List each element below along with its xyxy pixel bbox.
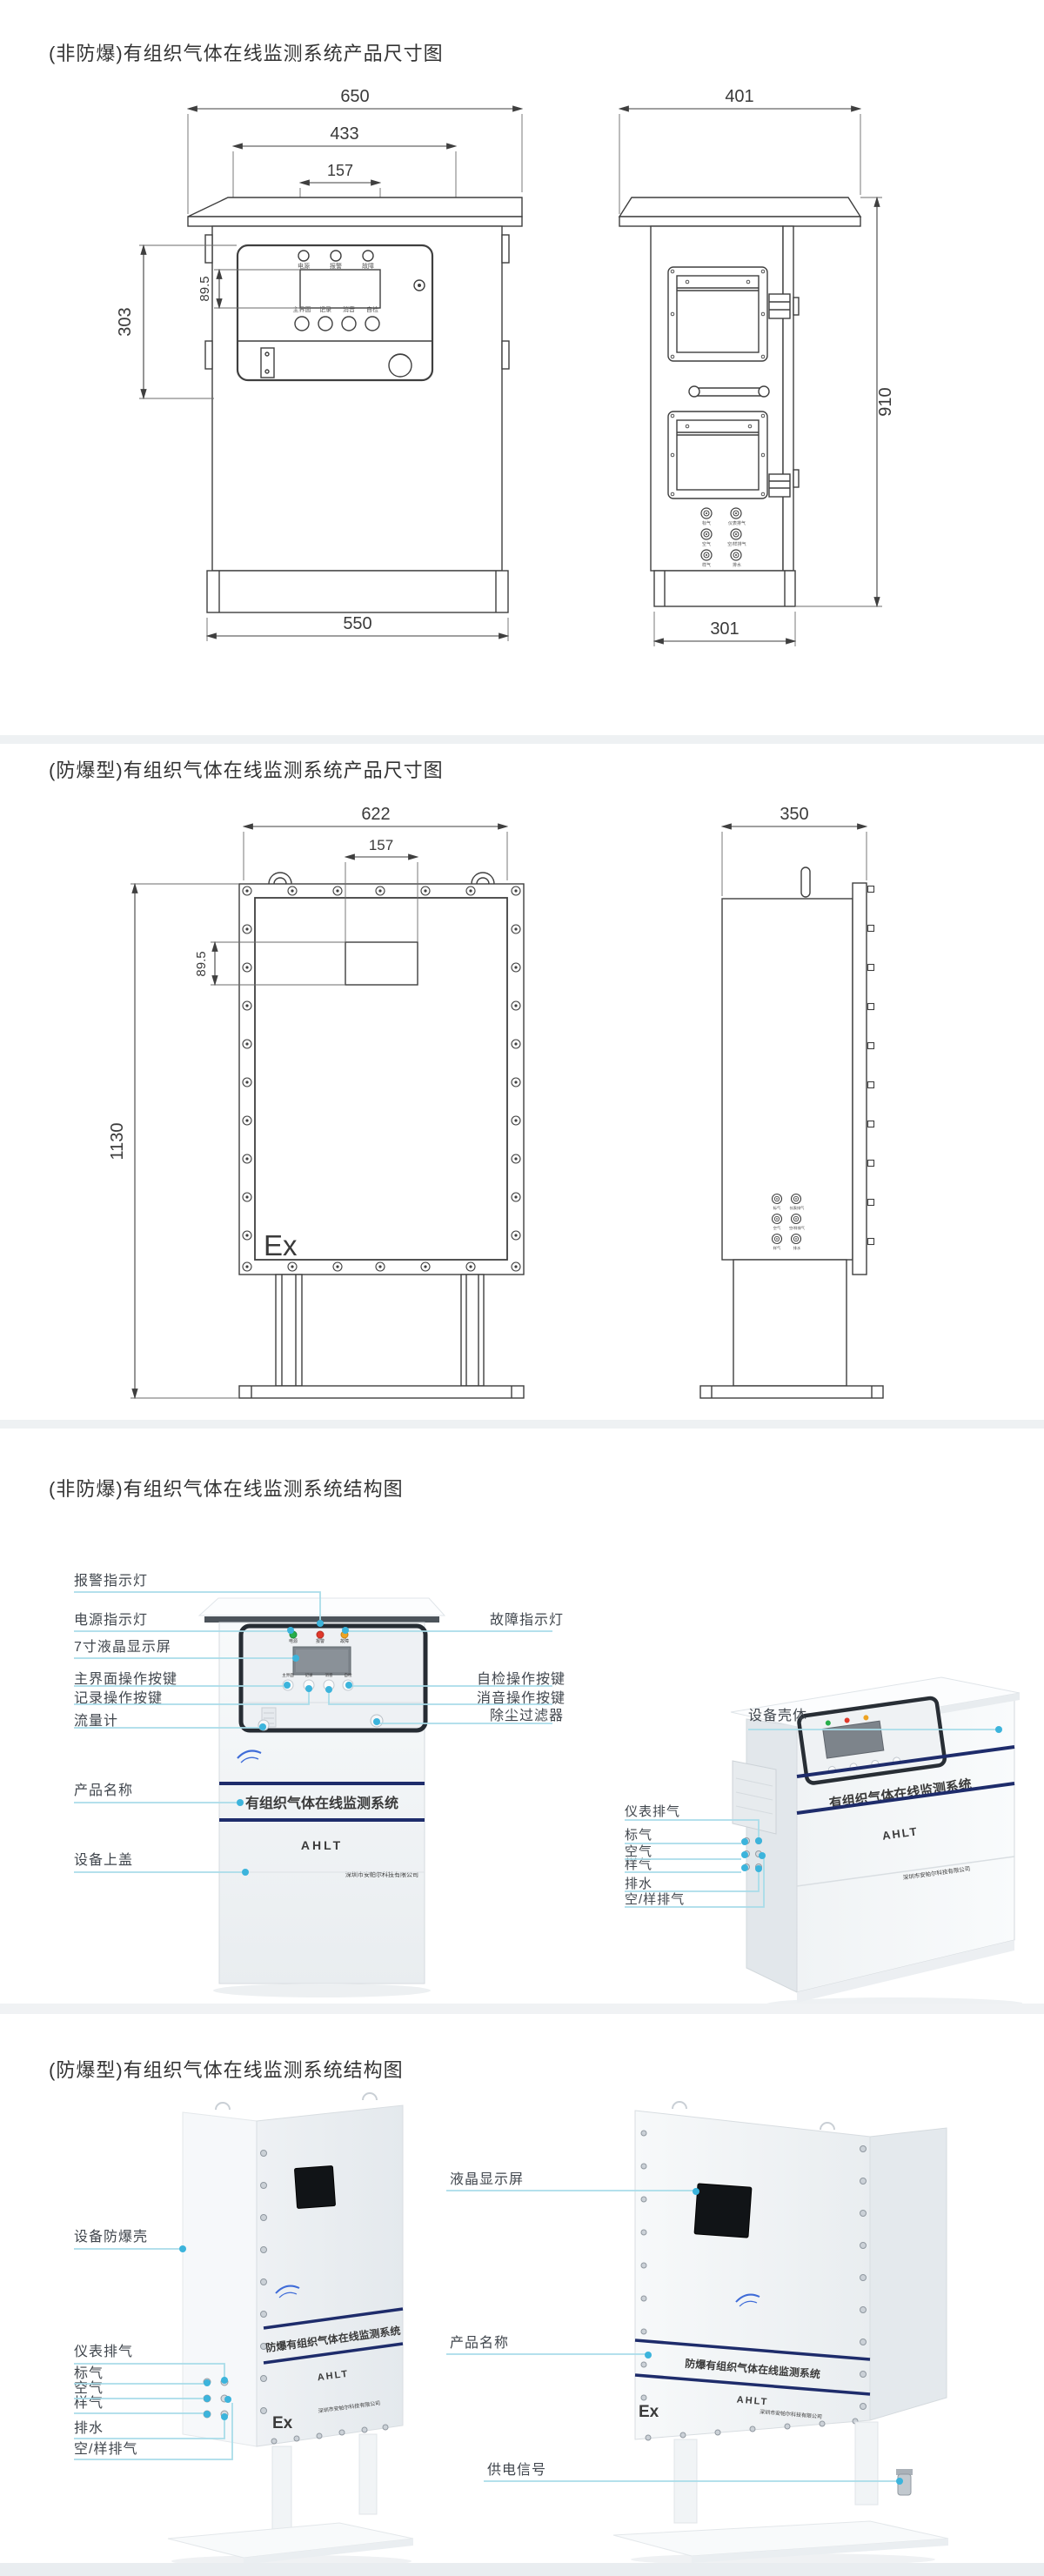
record-button: [304, 1680, 314, 1690]
svg-text:电源: 电源: [298, 262, 310, 270]
floor-base-side: [700, 1386, 883, 1398]
svg-text:样气: 样气: [773, 1245, 781, 1251]
callout-dust-filter: 除尘过滤器: [490, 1708, 564, 1725]
dim-303: 303: [116, 307, 135, 336]
svg-text:主界面: 主界面: [282, 1672, 294, 1678]
band-line-bottom: [219, 1818, 425, 1822]
svg-text:排水: 排水: [793, 1245, 801, 1251]
lcd-screen: [694, 2184, 752, 2238]
section-divider: [0, 2004, 1044, 2014]
front-view-nonex: 650 433 157 电源 报警 故障 89.5: [116, 87, 522, 641]
product-spec-page: (非防爆)有组织气体在线监测系统产品尺寸图 650 433 157: [0, 0, 1044, 2576]
callout-mute-button: 消音操作按键: [477, 1690, 565, 1708]
fault-led: [341, 1631, 348, 1638]
lifting-ring: [820, 2123, 834, 2130]
dim-157-ex: 157: [369, 837, 393, 853]
pedestal-leg: [674, 2439, 697, 2523]
dim-89-5: 89.5: [197, 276, 212, 301]
dust-filter: [371, 1715, 383, 1727]
pedestal-leg: [272, 2446, 291, 2530]
lifting-ring-side: [801, 867, 810, 897]
power-signal-gland: [898, 2474, 911, 2495]
dim-89-5-ex: 89.5: [194, 951, 209, 976]
dim-622: 622: [361, 805, 390, 824]
screen: [300, 270, 380, 308]
callout-sample-gas: 样气: [625, 1857, 652, 1873]
ex-mark: Ex: [639, 2403, 659, 2421]
dimension-drawing-ex: 622 157 89.5 Ex: [0, 800, 1044, 1409]
callout-lcd: 7寸液晶显示屏: [74, 1639, 171, 1656]
mute-button: [324, 1680, 334, 1690]
door-edge: [783, 226, 793, 571]
dimension-drawing-nonex: 650 433 157 电源 报警 故障 89.5: [0, 87, 1044, 705]
lifting-ring: [363, 2093, 377, 2100]
pedestal-leg: [359, 2434, 377, 2514]
dim-301: 301: [710, 619, 739, 639]
svg-text:标气: 标气: [773, 1205, 781, 1211]
dim-650: 650: [340, 87, 369, 106]
render-nonex-front-unit: 电源 报警 故障 主界面 记录 消音 自检 有组织气体在线监测系统 AHLT 深…: [196, 1596, 448, 2005]
section-title-struct-nonex: (非防爆)有组织气体在线监测系统结构图: [49, 1474, 404, 1502]
pedestal: [733, 1260, 847, 1386]
section-title-struct-ex: (防爆型)有组织气体在线监测系统结构图: [49, 2055, 404, 2083]
ground-shadow: [213, 1984, 431, 1997]
dim-401: 401: [725, 87, 753, 106]
side-face: [746, 1719, 797, 1992]
callout-instrument-exhaust: 仪表排气: [625, 1804, 680, 1820]
lcd-glass: [296, 1649, 348, 1672]
dim-157: 157: [327, 162, 353, 179]
alarm-led: [317, 1631, 324, 1638]
svg-text:排水: 排水: [733, 562, 741, 568]
callout-sample-gas: 样气: [74, 2395, 104, 2412]
roof-side: [619, 197, 860, 217]
dim-350: 350: [780, 805, 808, 824]
callout-instrument-exhaust: 仪表排气: [74, 2344, 133, 2361]
svg-text:仪表排气: 仪表排气: [790, 1205, 806, 1211]
callout-flow-meter: 流量计: [74, 1713, 118, 1730]
callout-main-ui-button: 主界面操作按键: [74, 1671, 177, 1689]
pedestal-leg: [855, 2422, 878, 2505]
callout-ex-housing: 设备防爆壳: [74, 2229, 148, 2246]
svg-text:标气: 标气: [702, 520, 711, 526]
render-ex-right-unit: 防爆有组织气体在线监测系统 AHLT 深圳市安帕尔科技有限公司 Ex: [609, 2090, 966, 2564]
side-view-ex: 350 标气 仪表排气 空气 空/样排气 样气 排水: [700, 805, 883, 1398]
hinge: [769, 294, 790, 318]
callout-self-check-button: 自检操作按键: [477, 1671, 565, 1689]
callout-product-name: 产品名称: [74, 1783, 133, 1800]
ex-mark: Ex: [264, 1229, 298, 1261]
roof-vent-shadow: [204, 1616, 439, 1623]
company-text: 深圳市安帕尔科技有限公司: [345, 1870, 418, 1878]
callout-power-signal: 供电信号: [487, 2462, 546, 2479]
svg-text:消音: 消音: [325, 1672, 333, 1678]
svg-text:主界面: 主界面: [293, 305, 311, 313]
callout-span-gas: 标气: [625, 1828, 652, 1843]
base: [207, 571, 508, 612]
dim-433: 433: [330, 124, 358, 144]
product-band-text: 有组织气体在线监测系统: [245, 1795, 398, 1811]
ex-mark: Ex: [272, 2414, 293, 2432]
svg-text:空气: 空气: [702, 541, 711, 547]
svg-text:电源: 电源: [289, 1638, 298, 1644]
self-check-button: [343, 1680, 353, 1690]
hinge: [769, 474, 790, 497]
callout-air-sample-exhaust: 空/样排气: [74, 2441, 137, 2459]
brand-text: AHLT: [301, 1838, 343, 1852]
svg-text:故障: 故障: [340, 1638, 349, 1644]
section-title-dim-nonex: (非防爆)有组织气体在线监测系统产品尺寸图: [49, 38, 444, 66]
svg-text:自检: 自检: [345, 1672, 352, 1678]
callout-drain: 排水: [74, 2420, 104, 2438]
legs: [276, 1275, 484, 1386]
callout-product-name: 产品名称: [450, 2335, 509, 2352]
svg-text:空气: 空气: [773, 1225, 781, 1230]
dim-910: 910: [876, 387, 895, 416]
svg-text:消音: 消音: [343, 305, 355, 313]
svg-text:仪表排气: 仪表排气: [728, 520, 746, 526]
base-side: [654, 571, 795, 606]
callout-housing: 设备壳体: [748, 1708, 807, 1725]
side-view-nonex: 401: [619, 87, 895, 646]
callout-power-indicator: 电源指示灯: [74, 1612, 148, 1629]
svg-text:故障: 故障: [362, 262, 374, 270]
svg-text:样气: 样气: [702, 562, 711, 568]
main-ui-button: [283, 1680, 293, 1690]
section-divider: [0, 2563, 1044, 2576]
callout-record-button: 记录操作按键: [74, 1690, 163, 1708]
front-face: [257, 2105, 403, 2446]
flange-bolts-side: [868, 887, 874, 1245]
lcd-screen: [294, 2166, 335, 2209]
power-led: [290, 1631, 297, 1638]
roof: [188, 197, 522, 217]
sampling-hood: [733, 1761, 776, 1834]
dim-1130: 1130: [108, 1122, 127, 1160]
callout-top-cover: 设备上盖: [74, 1852, 133, 1870]
screen: [345, 942, 418, 985]
side-face: [183, 2112, 257, 2446]
section-divider: [0, 735, 1044, 744]
svg-text:报警: 报警: [330, 262, 342, 270]
section-title-dim-ex: (防爆型)有组织气体在线监测系统产品尺寸图: [49, 755, 444, 783]
svg-text:记录: 记录: [305, 1672, 313, 1677]
front-view-ex: 622 157 89.5 Ex: [108, 805, 524, 1398]
lifting-ring: [673, 2102, 686, 2109]
handle: [689, 386, 769, 397]
svg-text:空/样排气: 空/样排气: [789, 1225, 806, 1231]
svg-text:自检: 自检: [366, 305, 378, 313]
svg-text:报警: 报警: [316, 1638, 325, 1644]
callout-air-sample-exhaust: 空/样排气: [625, 1892, 685, 1908]
section-divider: [0, 1420, 1044, 1429]
callout-drain: 排水: [625, 1877, 652, 1892]
svg-text:记录: 记录: [319, 306, 331, 313]
callout-lcd: 液晶显示屏: [450, 2171, 524, 2189]
roof: [199, 1598, 445, 1616]
render-ex-left-unit: 防爆有组织气体在线监测系统 AHLT 深圳市安帕尔科技有限公司 Ex: [161, 2086, 422, 2565]
callout-fault-indicator: 故障指示灯: [490, 1612, 564, 1629]
svg-text:空/样排气: 空/样排气: [727, 541, 746, 547]
side-face: [870, 2128, 947, 2420]
door-flange-side: [853, 883, 867, 1275]
flow-meter: [258, 1720, 269, 1730]
dim-550: 550: [343, 614, 371, 633]
band-line-top: [219, 1782, 425, 1785]
lifting-ring: [216, 2103, 230, 2110]
floor-base: [239, 1386, 524, 1398]
callout-alarm-indicator: 报警指示灯: [74, 1573, 148, 1590]
ex-cabinet-side: [722, 899, 853, 1260]
